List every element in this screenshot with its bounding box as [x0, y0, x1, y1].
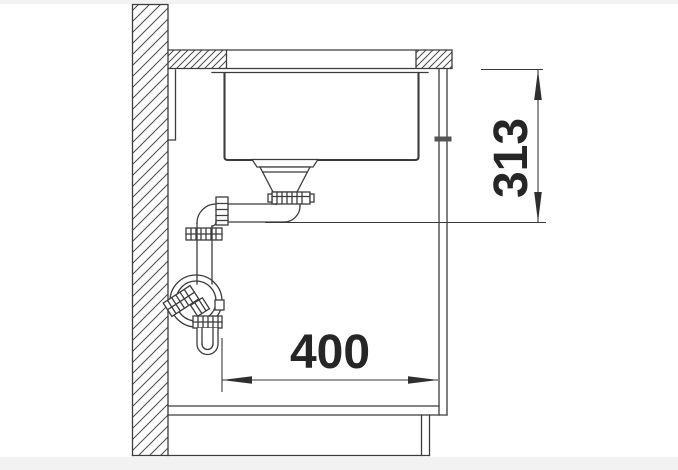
dim-400-label: 400 — [290, 326, 370, 379]
cabinet-side-panel — [435, 69, 452, 415]
strainer-locknut — [272, 192, 310, 204]
drain-elbow-pipe — [186, 197, 300, 284]
sink-installation-diagram: 313 400 — [0, 0, 678, 470]
trap-side-stub — [215, 300, 224, 310]
dimension-horizontal-400: 400 — [222, 326, 438, 392]
cabinet-bottom-panel — [168, 406, 447, 415]
page-bottom-band — [0, 457, 678, 470]
strainer-funnel — [260, 167, 310, 192]
dim-400-arrow-left — [222, 376, 252, 384]
drain-strainer — [252, 160, 318, 205]
plinth-toe-kick — [422, 415, 430, 456]
p-trap-siphon — [163, 275, 224, 355]
countertop-section — [168, 50, 452, 69]
wall-batten — [168, 70, 176, 140]
trap-u-bend — [197, 328, 218, 355]
wall-section — [133, 5, 169, 456]
dim-313-arrow-up — [534, 70, 542, 100]
strainer-flange — [252, 160, 318, 168]
dim-400-arrow-right — [408, 376, 438, 384]
page-top-band — [0, 0, 678, 4]
dim-313-label: 313 — [485, 118, 538, 198]
sink-basin — [225, 73, 419, 161]
technical-drawing-canvas: 313 400 — [0, 0, 678, 470]
panel-joint-marker — [435, 137, 452, 142]
